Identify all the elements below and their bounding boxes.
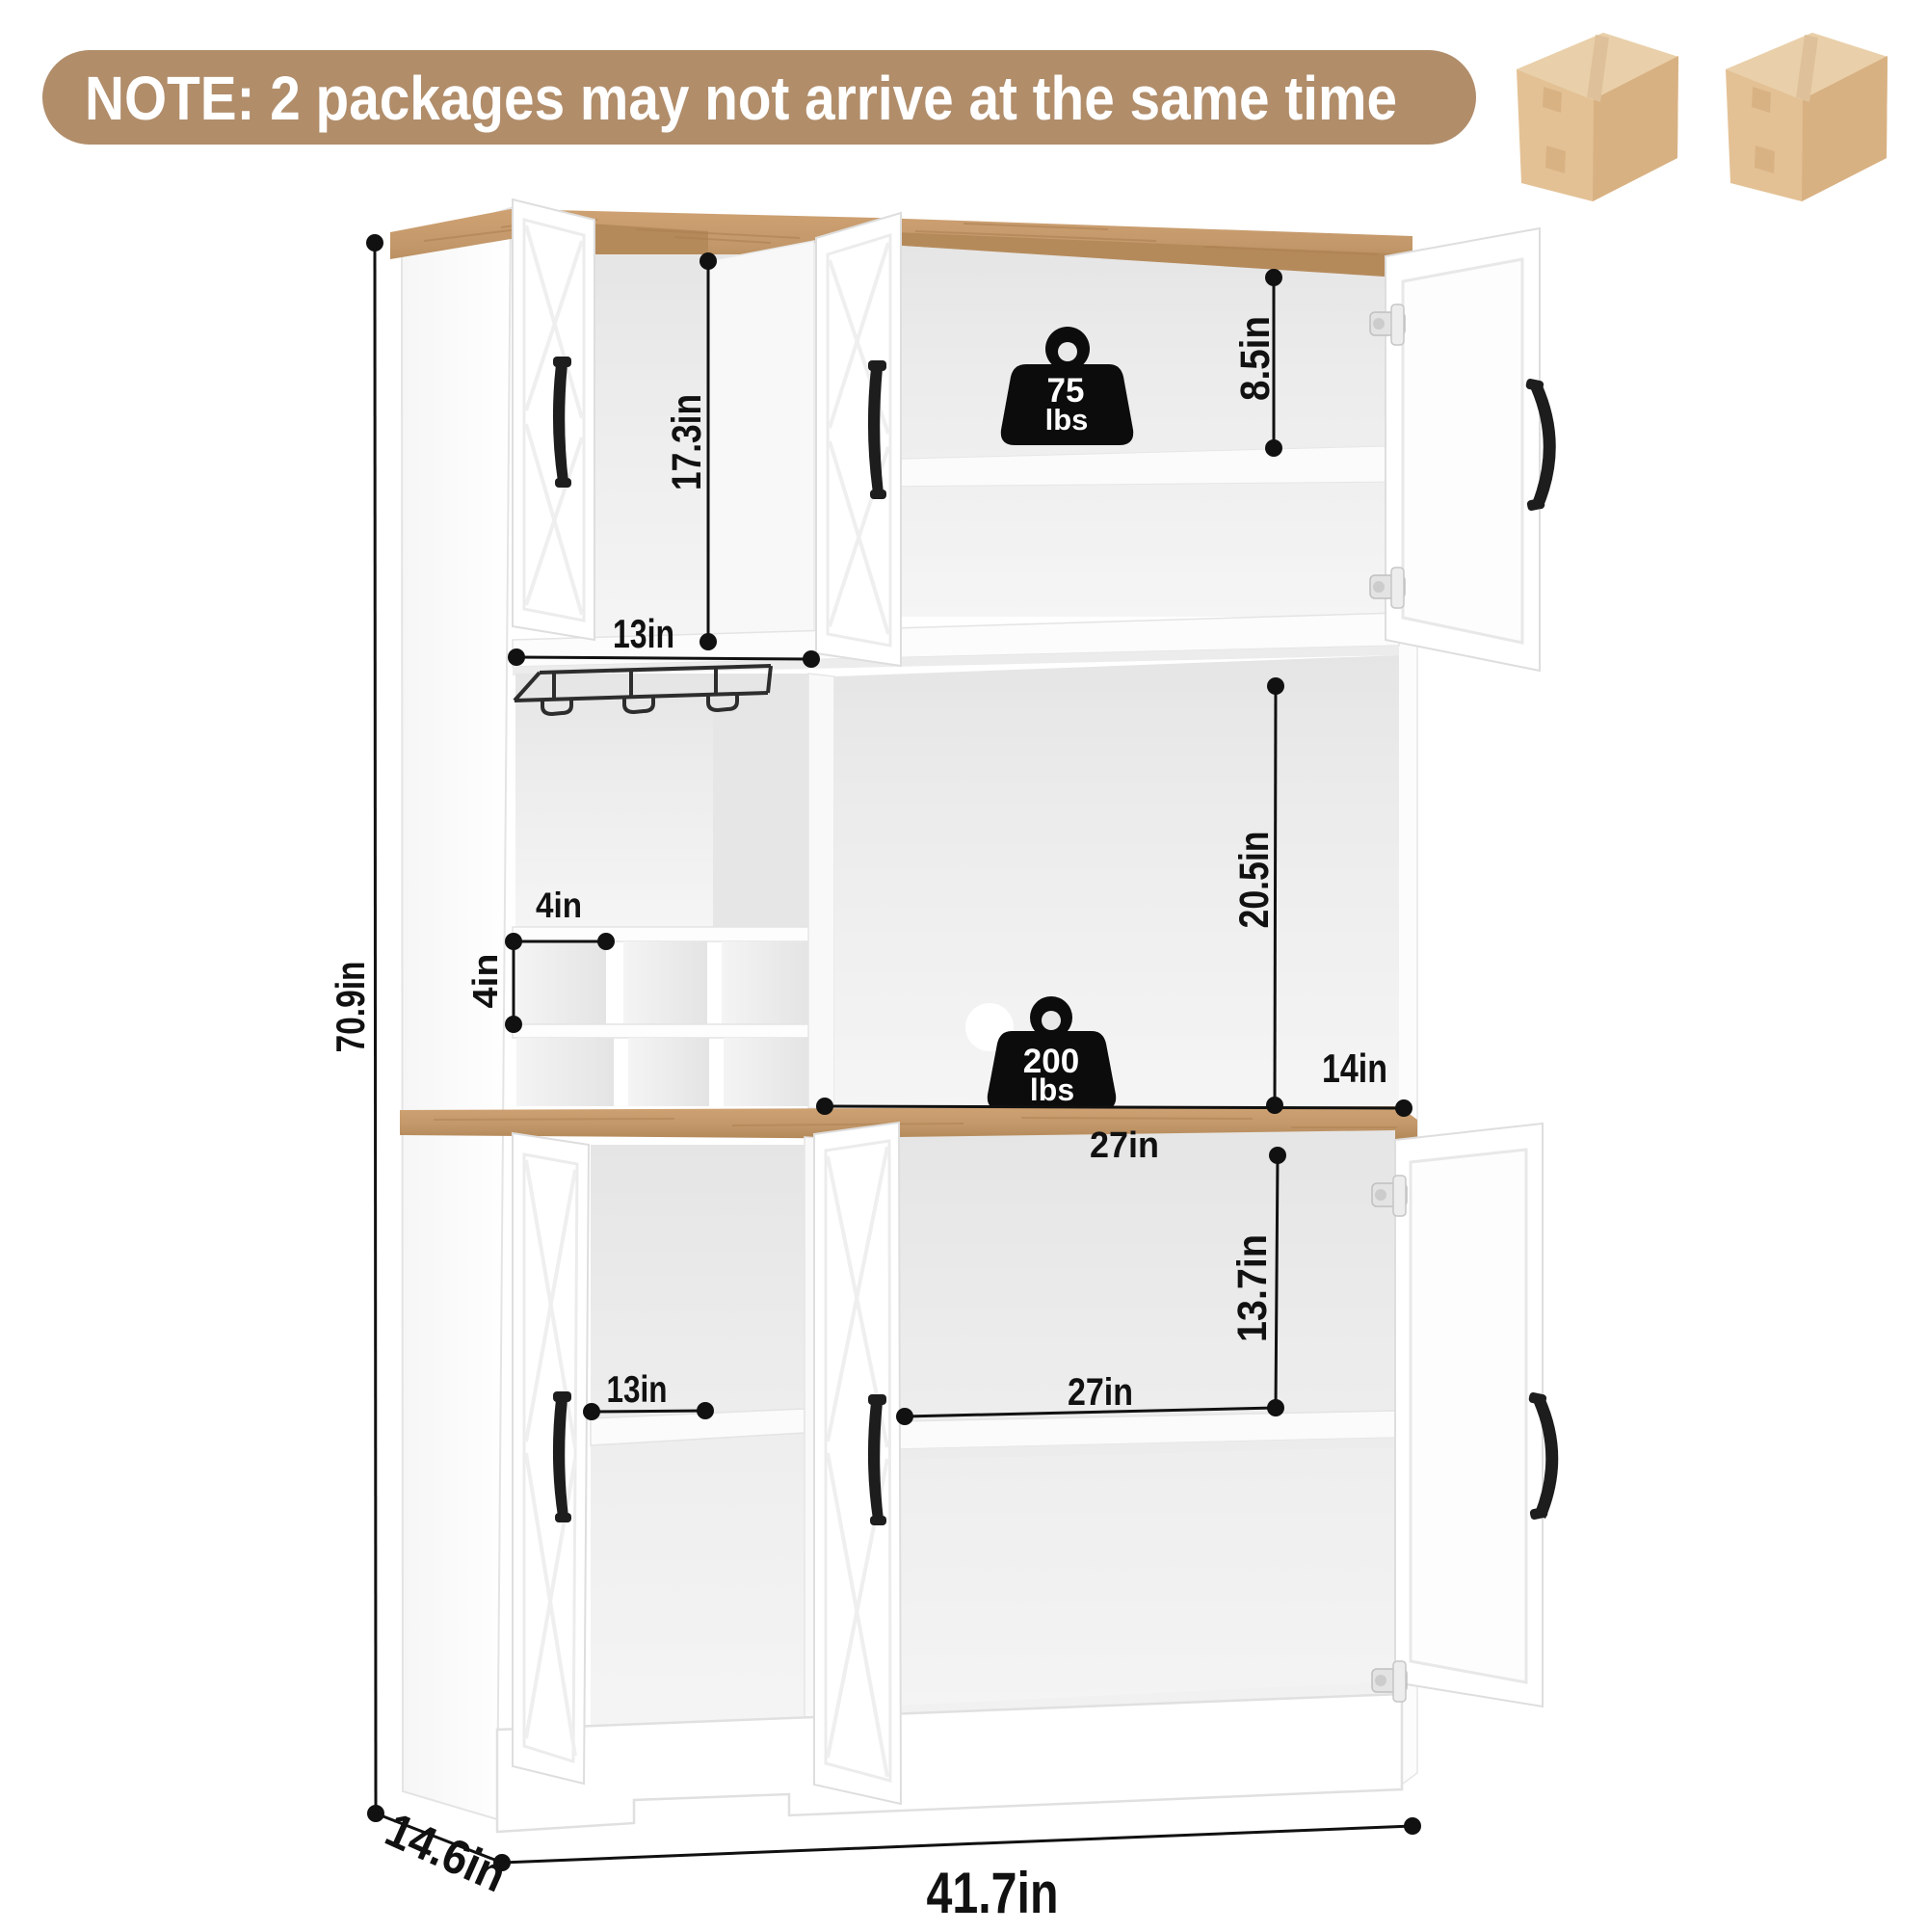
svg-text:13.7in: 13.7in bbox=[1229, 1234, 1276, 1342]
svg-text:27in: 27in bbox=[1068, 1371, 1133, 1414]
svg-text:4in: 4in bbox=[465, 954, 505, 1009]
svg-text:27in: 27in bbox=[1090, 1125, 1159, 1166]
svg-text:13in: 13in bbox=[607, 1369, 668, 1411]
svg-text:13in: 13in bbox=[613, 611, 674, 656]
svg-text:70.9in: 70.9in bbox=[328, 962, 373, 1053]
svg-text:41.7in: 41.7in bbox=[927, 1861, 1059, 1925]
svg-text:17.3in: 17.3in bbox=[664, 394, 710, 490]
svg-text:20.5in: 20.5in bbox=[1231, 832, 1278, 929]
svg-text:14in: 14in bbox=[1322, 1045, 1387, 1091]
svg-text:4in: 4in bbox=[536, 886, 582, 925]
svg-text:lbs: lbs bbox=[1030, 1072, 1074, 1107]
svg-text:NOTE: 2 packages may not arriv: NOTE: 2 packages may not arrive at the s… bbox=[85, 64, 1397, 133]
svg-text:lbs: lbs bbox=[1045, 403, 1089, 437]
svg-text:8.5in: 8.5in bbox=[1232, 316, 1279, 401]
